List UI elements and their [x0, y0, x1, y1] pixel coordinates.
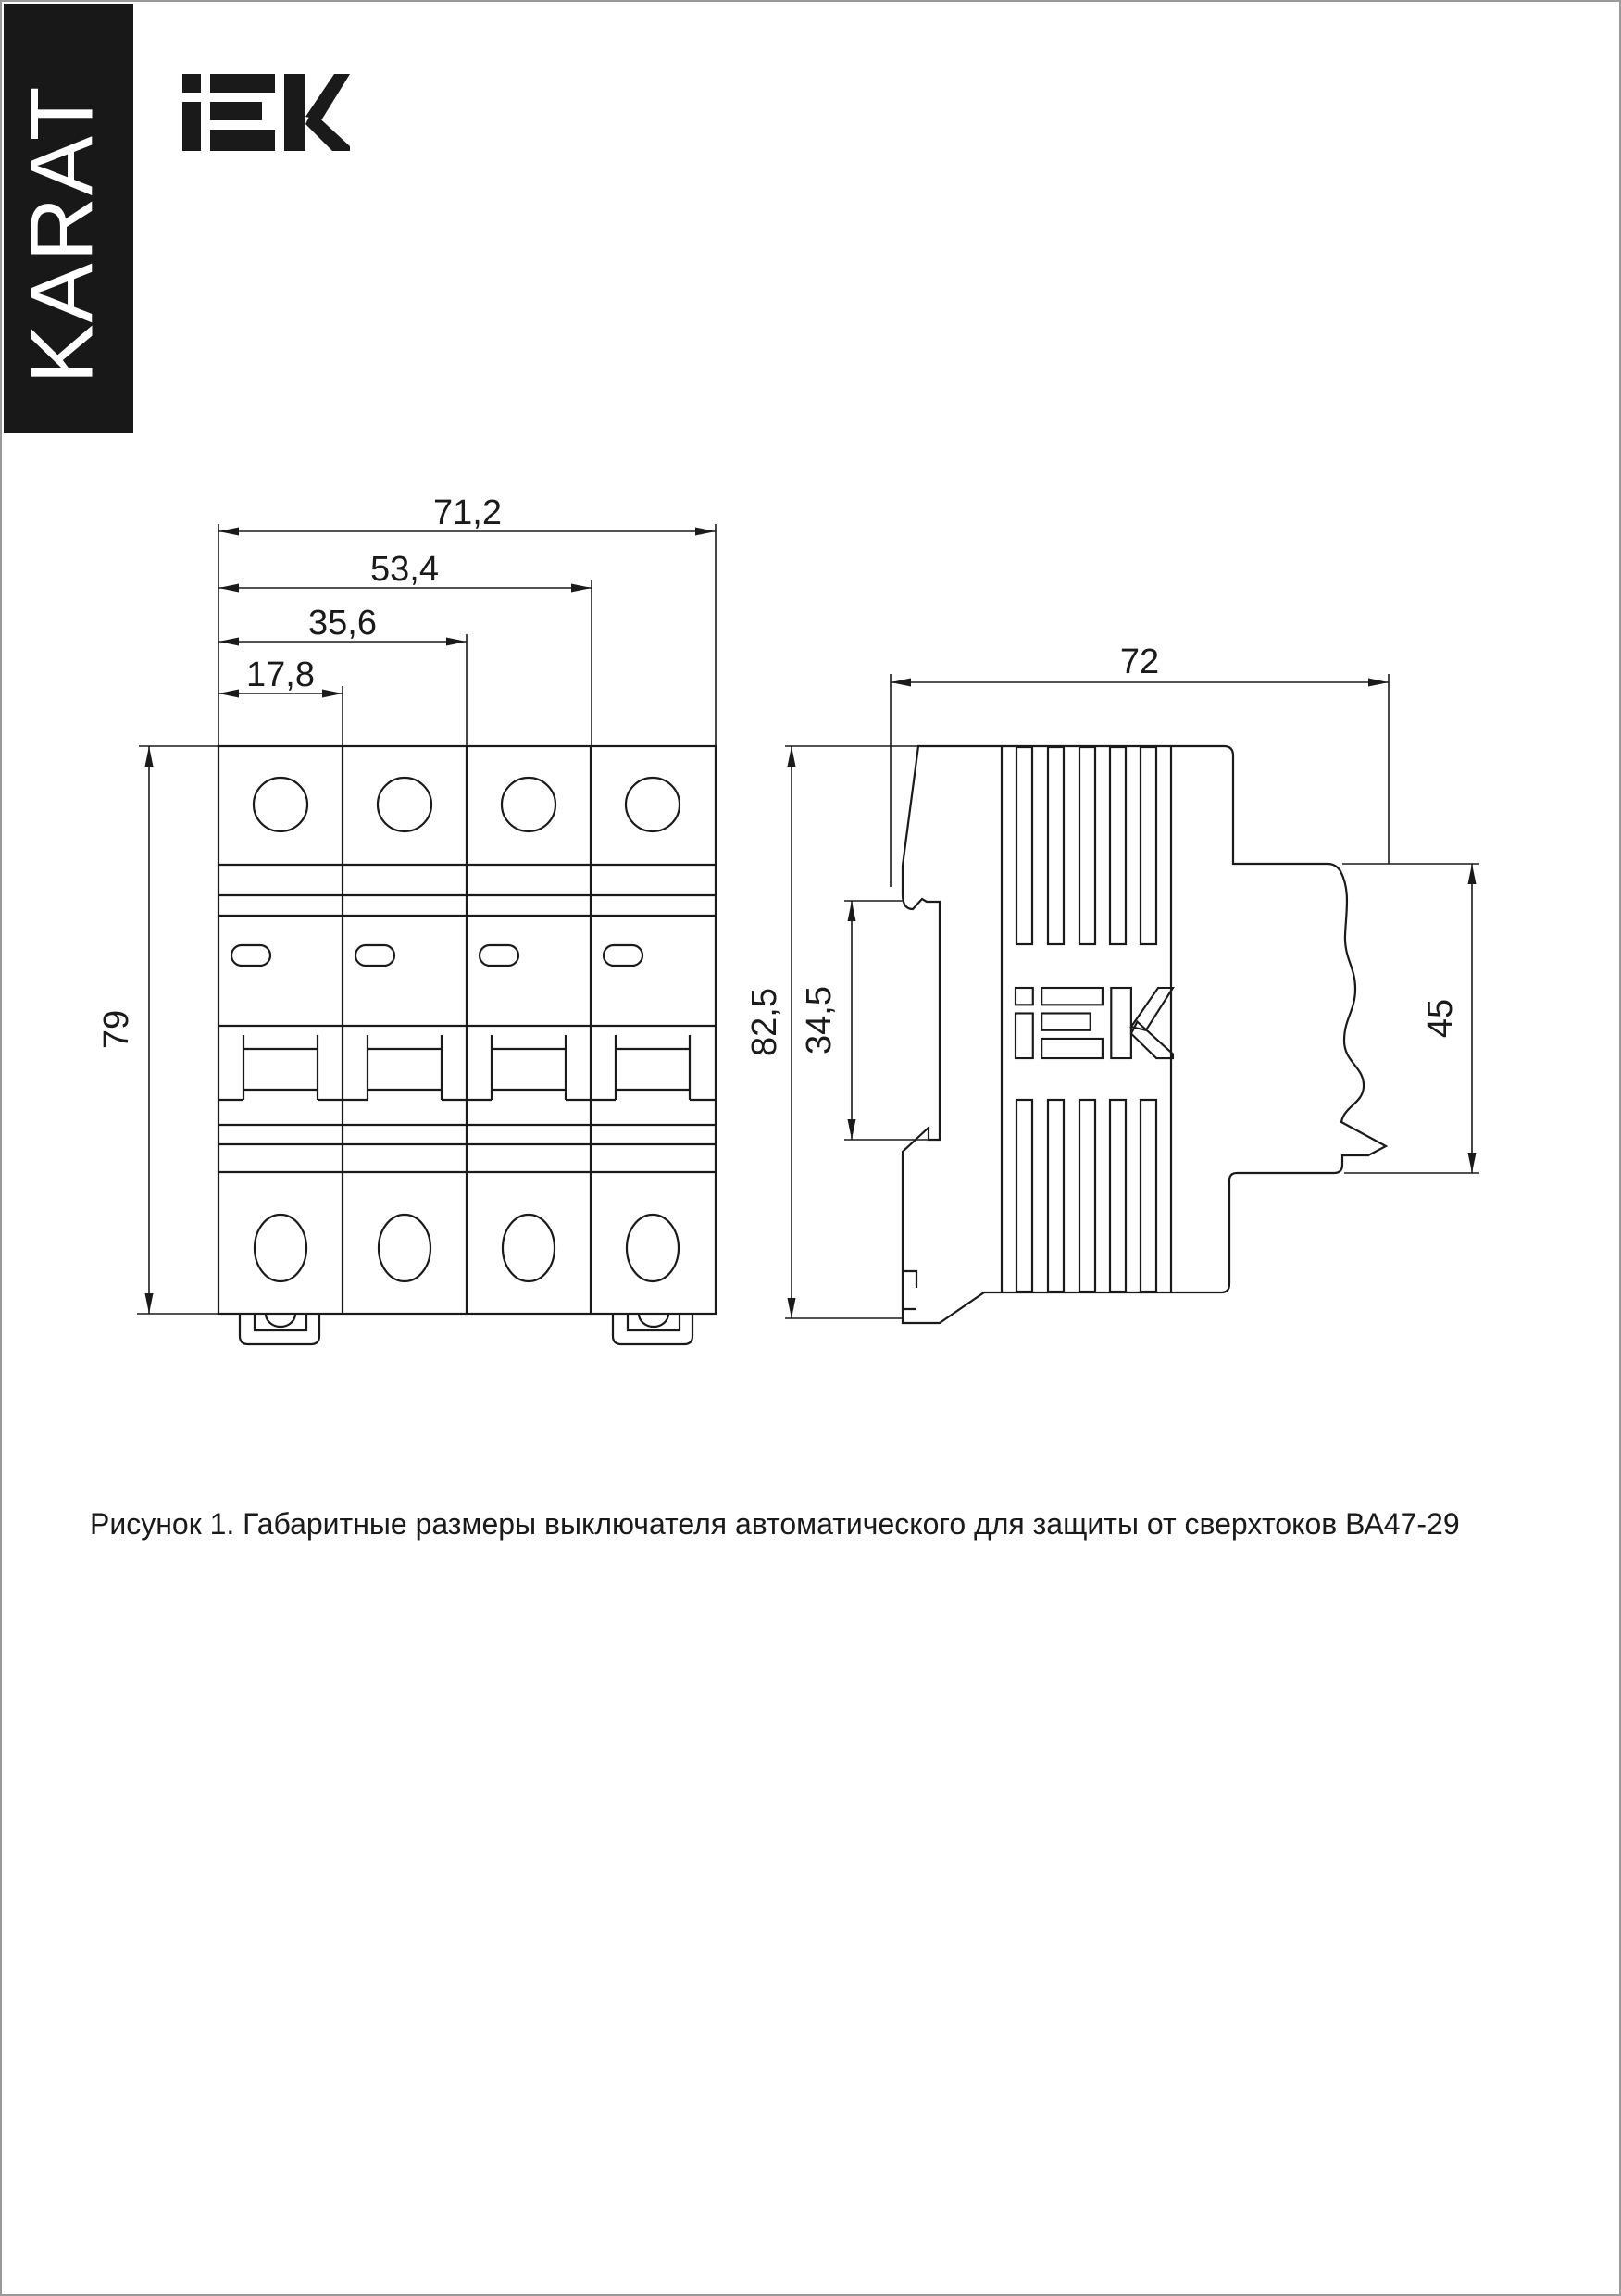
- figure-caption: Рисунок 1. Габаритные размеры выключател…: [90, 1507, 1460, 1541]
- marking-windows: [231, 945, 642, 966]
- banner-label: KARAT: [12, 85, 111, 384]
- side-view: [903, 746, 1386, 1323]
- dim-front-height: 45: [1421, 999, 1460, 1038]
- dim-depth: 72: [1120, 643, 1159, 681]
- karat-banner: KARAT: [4, 4, 133, 433]
- side-view-dimensions: [785, 674, 1479, 1318]
- dim-height-front: 79: [97, 1010, 136, 1049]
- vent-slots-lower: [1016, 1100, 1156, 1291]
- pole-dividers: [343, 746, 591, 1314]
- din-clips: [240, 1314, 692, 1344]
- dim-width-total: 71,2: [433, 493, 502, 532]
- dim-width-1pole: 17,8: [246, 655, 315, 694]
- document-page: KARAT: [0, 0, 1621, 2296]
- dim-din-window: 34,5: [800, 986, 839, 1054]
- arrowheads: [145, 528, 717, 1315]
- iek-side-logo: [1016, 988, 1173, 1058]
- dim-width-3poles: 53,4: [370, 550, 439, 589]
- technical-drawing: KARAT: [0, 0, 1621, 2296]
- din-foot-detail: [903, 1271, 916, 1309]
- front-panel-edges: [1002, 746, 1171, 1292]
- iek-logo: [182, 74, 350, 151]
- page-border: [1, 1, 1620, 2295]
- dim-width-2poles: 35,6: [308, 604, 377, 643]
- dim-height-total: 82,5: [745, 988, 784, 1056]
- vent-slots-upper: [1016, 747, 1156, 944]
- front-view-dimensions: [137, 524, 716, 1314]
- breaker-body-side: [903, 746, 1386, 1323]
- front-view: [218, 746, 716, 1344]
